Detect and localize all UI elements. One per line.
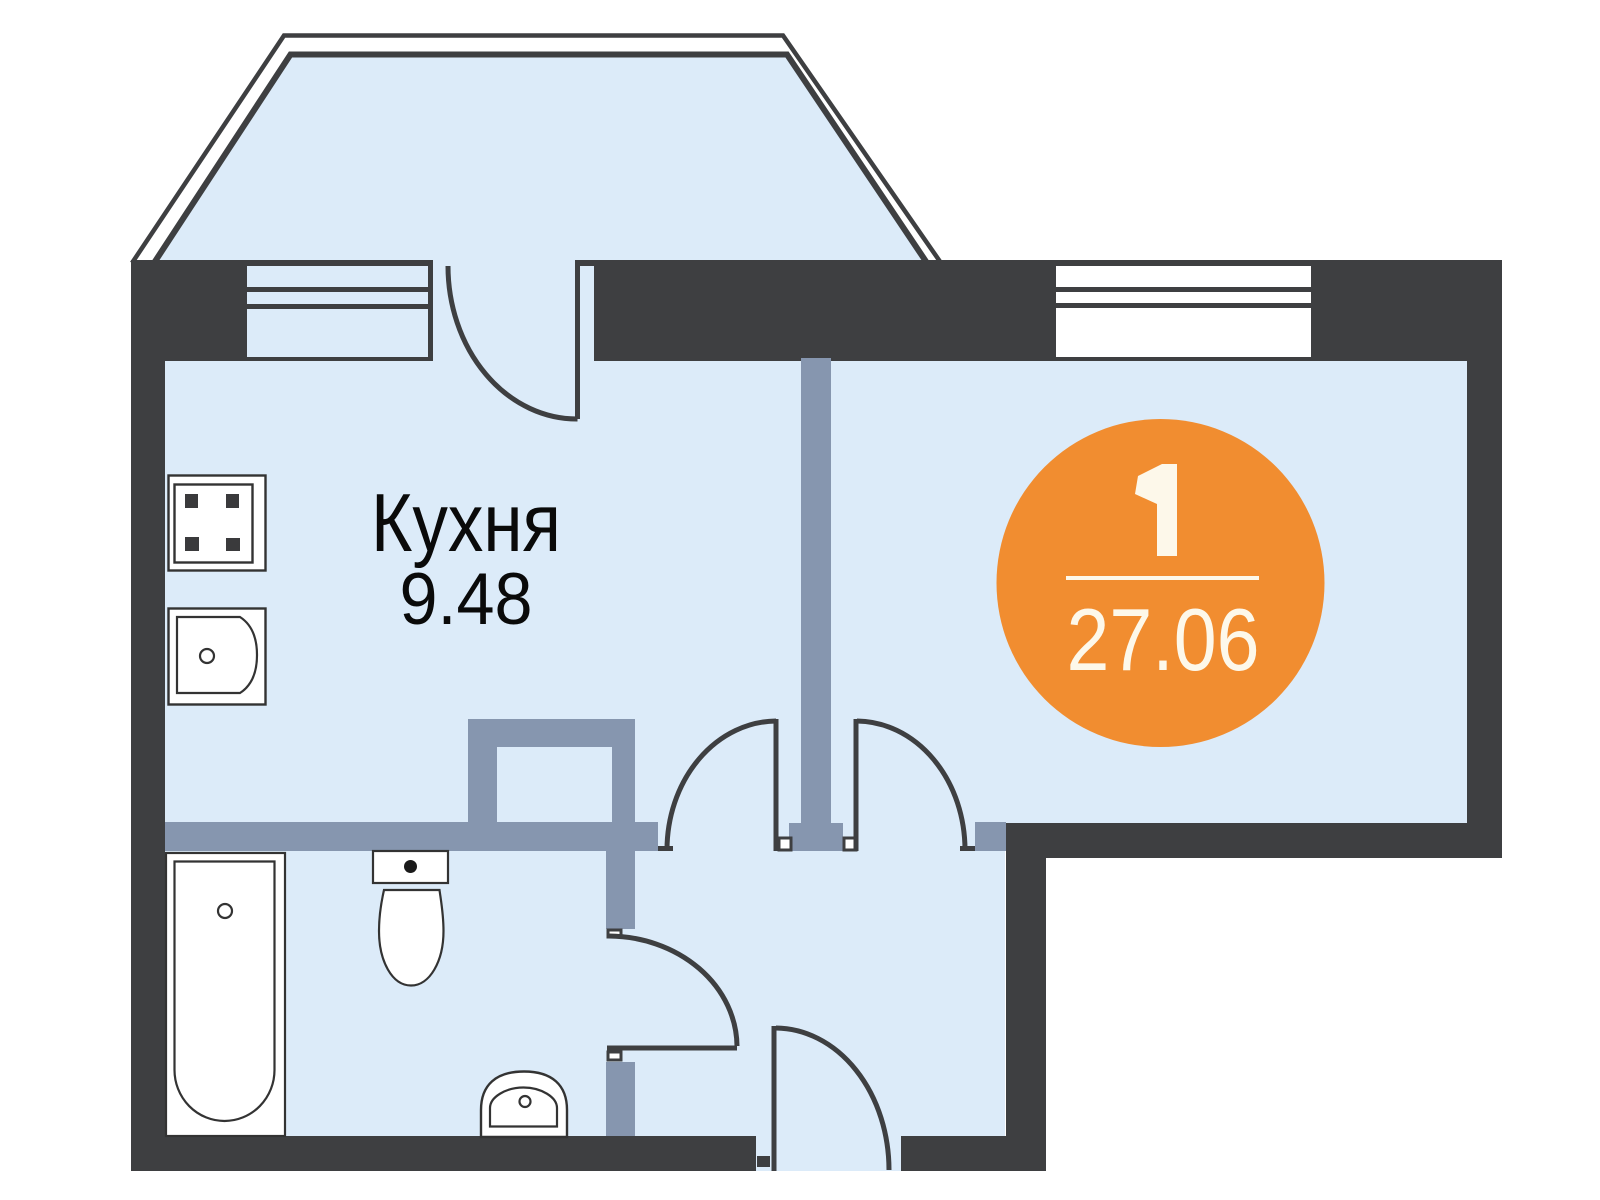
svg-text:27.06: 27.06: [1067, 590, 1260, 689]
svg-text:Кухня: Кухня: [371, 476, 561, 569]
svg-text:9.48: 9.48: [400, 559, 533, 640]
